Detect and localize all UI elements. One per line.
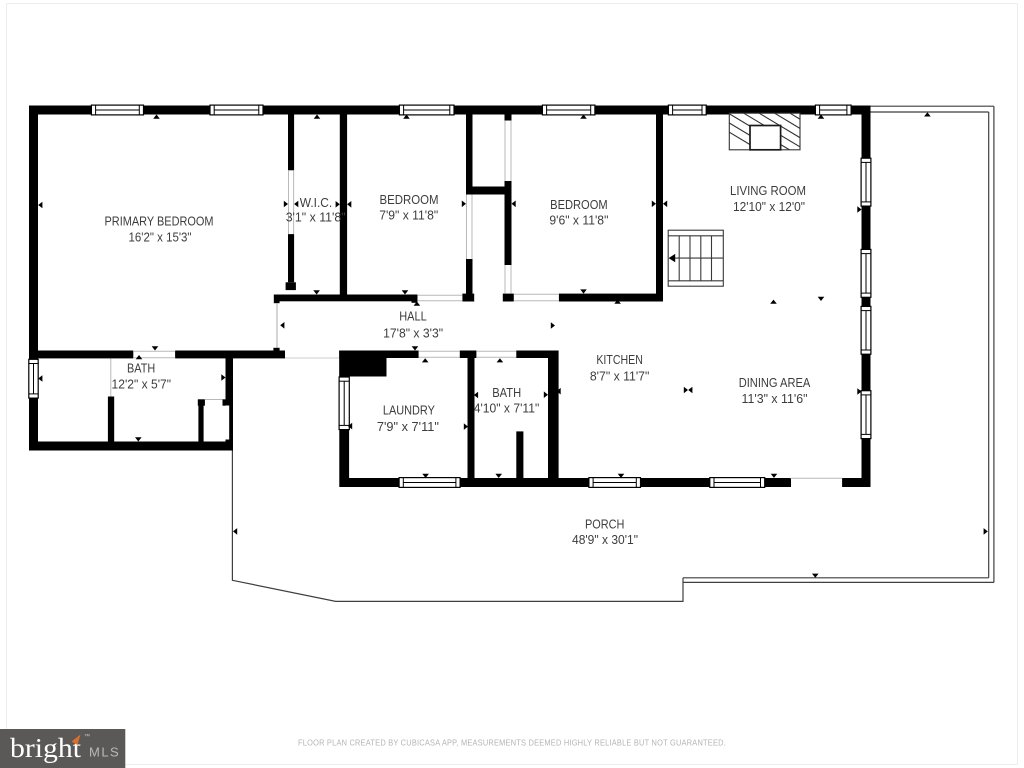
svg-text:PRIMARY BEDROOM: PRIMARY BEDROOM xyxy=(105,214,214,229)
svg-text:7'9" x 7'11": 7'9" x 7'11" xyxy=(377,419,439,434)
svg-text:KITCHEN: KITCHEN xyxy=(596,352,643,367)
svg-text:™: ™ xyxy=(84,733,90,740)
svg-text:DINING AREA: DINING AREA xyxy=(739,375,811,390)
svg-text:11'3" x 11'6": 11'3" x 11'6" xyxy=(742,391,808,406)
svg-text:12'10" x 12'0": 12'10" x 12'0" xyxy=(733,199,805,214)
svg-text:MLS: MLS xyxy=(89,745,120,760)
svg-text:8'7" x 11'7": 8'7" x 11'7" xyxy=(590,368,650,383)
svg-text:9'6" x 11'8": 9'6" x 11'8" xyxy=(549,212,608,227)
svg-text:FLOOR PLAN CREATED BY CUBICASA: FLOOR PLAN CREATED BY CUBICASA APP, MEAS… xyxy=(298,739,726,748)
svg-text:BATH: BATH xyxy=(127,361,155,376)
svg-text:HALL: HALL xyxy=(399,309,427,324)
svg-text:16'2" x 15'3": 16'2" x 15'3" xyxy=(129,229,192,244)
svg-text:BEDROOM: BEDROOM xyxy=(380,192,439,207)
svg-text:17'8" x 3'3": 17'8" x 3'3" xyxy=(383,325,443,340)
svg-text:BATH: BATH xyxy=(492,385,521,400)
svg-text:7'9" x 11'8": 7'9" x 11'8" xyxy=(379,208,438,223)
svg-text:LIVING ROOM: LIVING ROOM xyxy=(730,183,806,198)
svg-text:BEDROOM: BEDROOM xyxy=(550,197,608,212)
svg-text:W.I.C.: W.I.C. xyxy=(300,195,333,210)
svg-text:3'1" x 11'8": 3'1" x 11'8" xyxy=(286,209,346,224)
svg-text:4'10" x 7'11": 4'10" x 7'11" xyxy=(474,401,540,416)
svg-text:12'2" x 5'7": 12'2" x 5'7" xyxy=(112,377,172,392)
svg-text:bright: bright xyxy=(10,733,82,763)
svg-text:PORCH: PORCH xyxy=(585,517,625,532)
svg-text:LAUNDRY: LAUNDRY xyxy=(383,403,435,418)
svg-text:48'9" x 30'1": 48'9" x 30'1" xyxy=(572,532,638,547)
